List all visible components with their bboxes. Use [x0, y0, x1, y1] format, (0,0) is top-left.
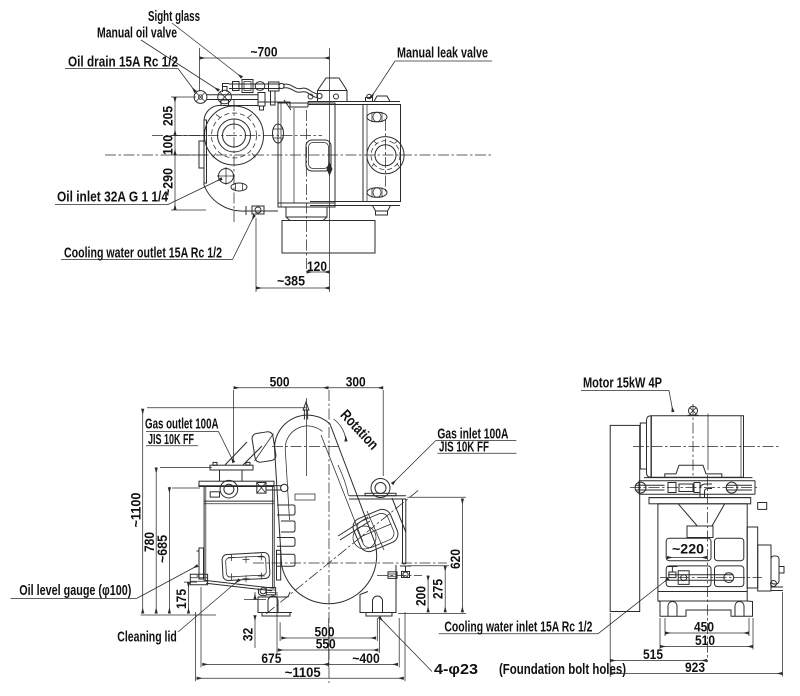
svg-text:~400: ~400 [352, 650, 380, 666]
svg-text:300: 300 [346, 373, 366, 389]
svg-text:(Foundation bolt holes): (Foundation bolt holes) [499, 661, 626, 678]
svg-text:923: 923 [685, 659, 705, 675]
svg-text:~685: ~685 [154, 535, 170, 563]
svg-text:Sight glass: Sight glass [148, 8, 200, 25]
svg-text:JIS 10K FF: JIS 10K FF [148, 431, 194, 448]
svg-text:515: 515 [643, 646, 663, 662]
svg-text:~385: ~385 [277, 273, 305, 289]
svg-text:205: 205 [159, 106, 175, 126]
svg-text:Oil drain 15A Rc 1/2: Oil drain 15A Rc 1/2 [68, 54, 178, 71]
svg-text:Motor 15kW 4P: Motor 15kW 4P [583, 375, 662, 392]
svg-text:620: 620 [447, 549, 463, 569]
svg-text:175: 175 [173, 589, 189, 609]
svg-text:500: 500 [270, 373, 290, 389]
svg-text:550: 550 [316, 636, 336, 652]
svg-text:Manual leak valve: Manual leak valve [397, 45, 488, 62]
svg-text:510: 510 [695, 632, 715, 648]
svg-text:100: 100 [159, 135, 175, 155]
svg-text:4-φ23: 4-φ23 [434, 661, 478, 678]
svg-text:Cooling water outlet 15A Rc 1/: Cooling water outlet 15A Rc 1/2 [64, 245, 222, 262]
svg-text:120: 120 [307, 258, 327, 274]
svg-text:~1105: ~1105 [285, 664, 321, 680]
svg-text:Cleaning lid: Cleaning lid [117, 629, 177, 646]
svg-text:Oil inlet 32A G 1 1/4: Oil inlet 32A G 1 1/4 [57, 189, 169, 206]
svg-text:Oil level gauge (φ100): Oil level gauge (φ100) [19, 582, 131, 599]
svg-text:Cooling water inlet 15A Rc 1/2: Cooling water inlet 15A Rc 1/2 [444, 618, 592, 635]
svg-text:675: 675 [261, 650, 281, 666]
svg-text:~700: ~700 [251, 43, 278, 59]
svg-text:~1100: ~1100 [127, 492, 143, 527]
svg-text:275: 275 [430, 579, 446, 599]
svg-text:32: 32 [240, 628, 256, 642]
svg-text:200: 200 [413, 586, 429, 606]
svg-text:Manual oil valve: Manual oil valve [97, 25, 177, 42]
svg-text:~220: ~220 [672, 541, 704, 557]
